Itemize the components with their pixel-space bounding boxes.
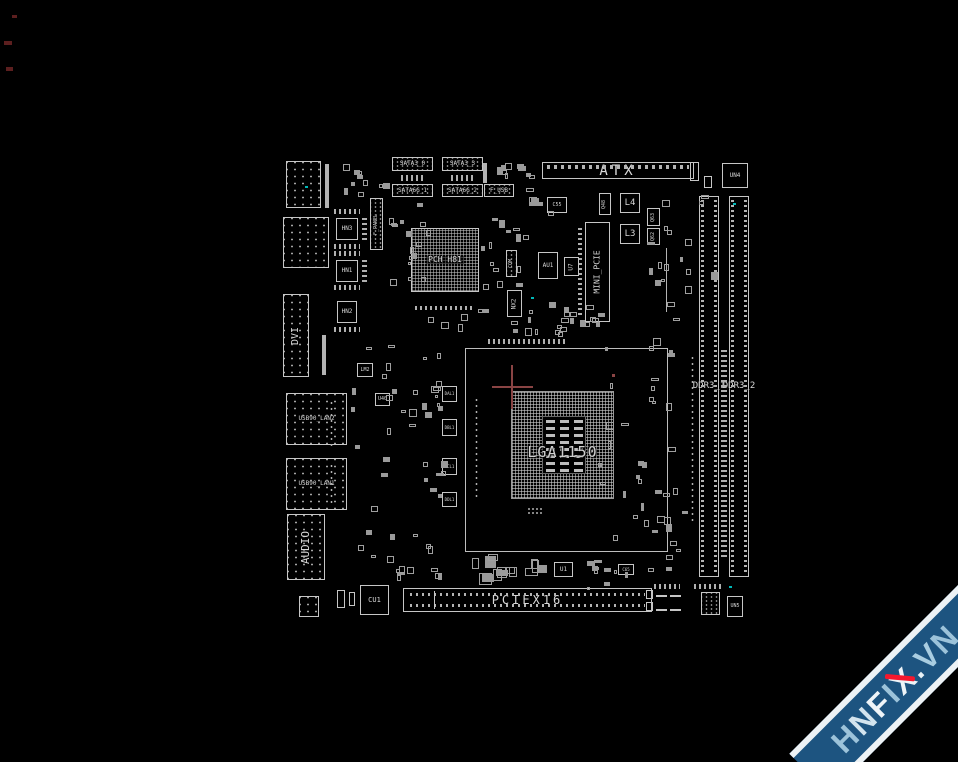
small-component <box>413 390 418 395</box>
small-component <box>594 560 602 563</box>
audio-port-label: AUDIO <box>301 530 312 563</box>
small-component <box>482 574 494 582</box>
motherboard-diagram: DVIUSB90_LAN2USB90_LAN1AUDIOHN3HN1HN2F_P… <box>0 0 958 762</box>
cap-c65-label: C65 <box>622 568 629 572</box>
small-component <box>422 403 427 410</box>
small-component <box>386 363 391 371</box>
small-component <box>435 395 438 398</box>
small-component <box>528 317 531 323</box>
pin-column <box>701 200 704 573</box>
small-component <box>525 328 532 336</box>
io-port-upper <box>283 217 329 268</box>
small-component <box>585 322 590 327</box>
small-component <box>407 567 414 574</box>
pin-column <box>714 200 717 573</box>
small-component <box>598 313 605 317</box>
small-component <box>686 269 691 275</box>
small-component <box>363 180 368 186</box>
small-component <box>526 188 534 192</box>
chip-un4-label: UN4 <box>730 173 741 179</box>
small-component <box>390 279 397 286</box>
small-component <box>621 423 629 426</box>
small-component <box>598 463 602 467</box>
slot-key-notch <box>434 591 435 609</box>
pin-row <box>334 209 360 214</box>
chip-hn3-label: HN3 <box>342 226 353 232</box>
pin-row <box>694 584 724 589</box>
small-component <box>513 329 518 333</box>
small-component <box>420 222 426 227</box>
small-component <box>668 447 676 452</box>
small-component <box>430 488 437 492</box>
small-component <box>390 534 395 540</box>
socket-capacitor <box>574 420 583 423</box>
dvi-port-label: DVI <box>291 326 301 344</box>
pch-bga-label: PCH H81 <box>426 256 464 264</box>
small-component <box>623 491 626 498</box>
pin-col <box>690 355 695 525</box>
pin-column <box>744 200 747 573</box>
marker-dot <box>612 374 615 377</box>
sata3-3-connector: SATA3_3 <box>442 157 483 171</box>
small-component <box>680 257 683 262</box>
small-component <box>357 175 363 179</box>
small-component <box>366 347 372 350</box>
small-component <box>653 338 661 346</box>
pin-row <box>334 327 360 332</box>
small-component <box>606 422 614 430</box>
sata3-0-connector-label: SATA3_0 <box>400 161 425 167</box>
mosfet-q48-label: Q48 <box>603 199 608 208</box>
sata6g-2-connector: SATA6G_2 <box>442 184 483 197</box>
small-component <box>408 277 412 281</box>
small-box <box>690 162 699 181</box>
small-component <box>381 473 388 477</box>
small-component <box>658 262 662 269</box>
socket-capacitor <box>574 469 583 472</box>
mosfet-q48: Q48 <box>599 193 611 215</box>
pin-row <box>401 175 423 181</box>
small-component <box>496 570 508 576</box>
chip-un4: UN4 <box>722 163 748 188</box>
small-component <box>655 490 662 494</box>
small-component <box>516 283 523 287</box>
inductor-l4: L4 <box>620 193 640 213</box>
small-component <box>517 266 521 273</box>
socket-capacitor <box>560 420 569 423</box>
small-component <box>535 329 538 335</box>
driver-dal1-label: DAL1 <box>445 392 455 396</box>
chip-hn1-label: HN1 <box>342 268 353 274</box>
small-component <box>421 277 426 282</box>
small-component <box>604 568 611 572</box>
small-component <box>649 346 654 351</box>
small-component <box>351 407 355 412</box>
small-component <box>387 556 394 563</box>
small-component <box>666 555 673 560</box>
pin-row <box>654 584 680 589</box>
small-component <box>667 302 675 307</box>
sata3-0-connector: SATA3_0 <box>392 157 433 171</box>
ddr3-2-slot-label: DDR3_2 <box>723 382 756 391</box>
small-component <box>461 314 468 321</box>
teal-indicator-dot <box>305 186 308 188</box>
watermark-red-slash <box>884 674 914 682</box>
socket-capacitor <box>546 462 555 465</box>
small-component <box>625 572 628 578</box>
component-bar <box>325 164 329 208</box>
small-component <box>673 318 680 321</box>
small-component <box>441 322 449 329</box>
small-component <box>406 231 412 237</box>
small-component <box>614 570 617 574</box>
small-component <box>413 534 418 537</box>
small-component <box>458 324 463 332</box>
driver-dbl1: DBL1 <box>442 419 457 436</box>
dvi-port: DVI <box>283 294 309 377</box>
teal-indicator-dot <box>531 297 534 299</box>
power-pin <box>656 609 667 611</box>
com-header: COM <box>506 250 517 277</box>
io-grid-connector <box>286 161 321 208</box>
small-component <box>641 503 644 511</box>
small-component <box>682 511 688 514</box>
small-component <box>636 475 640 479</box>
small-component <box>701 195 709 199</box>
small-component <box>388 345 395 348</box>
socket-capacitor <box>560 462 569 465</box>
small-component <box>657 516 665 523</box>
socket-capacitor <box>546 427 555 430</box>
small-component <box>532 560 539 573</box>
small-box <box>349 592 355 606</box>
small-component <box>488 554 498 561</box>
small-component <box>633 515 638 519</box>
small-component <box>509 567 517 577</box>
edge-artifact-mark <box>4 41 12 45</box>
small-component <box>423 462 428 467</box>
small-component <box>529 310 533 314</box>
small-component <box>669 350 673 357</box>
small-component <box>431 568 438 572</box>
small-component <box>483 284 489 290</box>
small-component <box>664 517 671 525</box>
chip-hn1: HN1 <box>336 260 358 282</box>
crosshair-vertical <box>511 365 513 409</box>
small-component <box>401 410 406 413</box>
small-component <box>604 582 610 586</box>
small-component <box>670 541 677 546</box>
small-component <box>437 353 441 359</box>
pin-row <box>488 339 565 344</box>
small-component <box>596 322 600 327</box>
pin-row <box>415 306 475 310</box>
small-component <box>661 279 665 282</box>
small-box <box>646 602 653 611</box>
small-component <box>539 565 547 573</box>
small-component <box>371 506 378 512</box>
teal-indicator-dot <box>733 203 736 205</box>
small-component <box>523 235 529 240</box>
socket-capacitor <box>574 434 583 437</box>
small-component <box>351 182 355 186</box>
chip-hn3: HN3 <box>336 218 358 240</box>
driver-dal1: DAL1 <box>442 386 457 402</box>
small-component <box>649 268 653 275</box>
socket-capacitor <box>546 469 555 472</box>
mosfet-q63: Q63 <box>647 208 660 226</box>
chip-u7: U7 <box>564 257 579 276</box>
small-component <box>570 312 577 317</box>
small-component <box>482 309 489 313</box>
com-header-label: COM <box>509 259 514 268</box>
small-component <box>352 388 356 395</box>
small-component <box>389 218 394 225</box>
chip-au1: AU1 <box>538 252 558 279</box>
small-component <box>647 242 655 245</box>
small-component <box>481 246 485 251</box>
small-component <box>580 320 585 327</box>
small-component <box>638 479 642 484</box>
chip-hn2-label: HN2 <box>342 309 353 315</box>
pciex16-slot: PCIEX16 <box>403 588 652 612</box>
small-component <box>651 386 655 391</box>
small-component <box>383 183 390 189</box>
small-component <box>371 555 376 558</box>
small-component <box>644 520 649 527</box>
small-component <box>648 568 654 572</box>
small-component <box>383 457 390 462</box>
mosfet-q62-label: Q62 <box>651 232 656 241</box>
ddr3-1-slot: DDR3_1 <box>699 196 719 577</box>
sata3-3-connector-label: SATA3_3 <box>450 161 475 167</box>
small-component <box>426 230 431 236</box>
chip-un5-label: UN5 <box>730 604 739 609</box>
small-component <box>663 493 670 497</box>
small-box <box>337 590 345 608</box>
small-component <box>416 242 422 247</box>
small-component <box>557 325 562 329</box>
small-component <box>409 424 416 427</box>
small-component <box>513 228 520 231</box>
small-component <box>570 318 574 324</box>
small-component <box>561 318 569 323</box>
pin-row <box>334 244 360 249</box>
atx12v-connector <box>656 590 681 616</box>
small-component <box>666 524 672 532</box>
socket-capacitor <box>546 434 555 437</box>
chip-lm2: LM2 <box>357 363 373 377</box>
small-component <box>529 175 535 179</box>
driver-ddl1-label: DDL1 <box>445 498 455 502</box>
teal-indicator-dot <box>729 586 732 588</box>
small-component <box>493 268 499 272</box>
inductor-l3-label: L3 <box>625 230 636 239</box>
socket-capacitor <box>574 462 583 465</box>
chip-lm2-label: LM2 <box>360 368 369 373</box>
small-component <box>608 441 611 449</box>
small-component <box>699 201 704 205</box>
small-component <box>417 203 423 207</box>
small-component <box>592 566 598 571</box>
pin-col <box>329 400 334 447</box>
small-component <box>392 389 397 394</box>
mini-pcie-slot-label: MINI_PCIE <box>594 250 602 293</box>
ddr3-2-slot: DDR3_2 <box>729 196 749 577</box>
small-component <box>548 211 554 216</box>
usb-lan2-port: USB90_LAN2 <box>286 393 347 445</box>
small-component <box>358 192 364 197</box>
small-component <box>344 188 348 195</box>
chip-un5: UN5 <box>727 596 743 617</box>
small-component <box>505 163 512 170</box>
pin-col <box>721 350 727 560</box>
small-component <box>424 478 428 482</box>
small-component <box>587 587 590 590</box>
small-component <box>651 378 659 381</box>
small-component <box>505 173 508 179</box>
boardview-screenshot: DVIUSB90_LAN2USB90_LAN1AUDIOHN3HN1HN2F_P… <box>0 0 958 762</box>
cap-c55-label: C55 <box>552 203 561 208</box>
sata6g-1-connector-label: SATA6G_1 <box>398 188 427 194</box>
chip-nx2-label: NX2 <box>512 298 518 309</box>
small-component <box>358 545 364 551</box>
small-component <box>397 575 401 581</box>
small-component <box>531 198 539 206</box>
small-component <box>428 317 434 323</box>
small-component <box>655 280 661 286</box>
crystal <box>299 596 319 617</box>
socket-capacitor <box>560 434 569 437</box>
socket-capacitor <box>560 469 569 472</box>
small-component <box>549 302 556 308</box>
usb-lan1-port: USB90_LAN1 <box>286 458 347 510</box>
small-component <box>600 482 606 485</box>
chip-u1: U1 <box>554 562 573 577</box>
header-box <box>701 592 720 615</box>
chip-cu1-label: CU1 <box>368 597 381 604</box>
small-component <box>428 546 433 554</box>
small-component <box>423 357 427 360</box>
small-component <box>412 253 417 259</box>
small-component <box>441 471 446 476</box>
component-bar <box>322 335 326 375</box>
small-component <box>685 239 692 246</box>
small-component <box>492 218 498 221</box>
small-component <box>408 262 411 265</box>
small-component <box>676 549 681 552</box>
small-component <box>586 305 594 310</box>
small-component <box>673 488 678 495</box>
small-component <box>511 321 518 325</box>
small-box <box>704 176 712 188</box>
atx-power-connector: ATX <box>542 162 694 179</box>
chip-hn2: HN2 <box>337 301 357 323</box>
small-component <box>667 230 672 235</box>
small-component <box>564 312 570 317</box>
inductor-l4-label: L4 <box>625 199 636 208</box>
pin-column <box>731 200 734 573</box>
pin-row <box>334 251 360 256</box>
chip-u1-label: U1 <box>560 567 567 573</box>
socket-label: LGA1150 <box>511 443 614 461</box>
small-component <box>366 530 372 535</box>
slot-pin-row <box>410 593 645 596</box>
small-component <box>506 230 511 233</box>
small-component <box>438 406 443 411</box>
small-component <box>652 401 656 404</box>
slot-pin-row <box>410 604 645 607</box>
mosfet-q63-label: Q63 <box>651 212 656 221</box>
small-component <box>664 264 669 271</box>
f-usb-header-label: F_USB <box>490 188 508 194</box>
small-component <box>685 286 692 294</box>
small-component <box>400 220 404 224</box>
f-usb-header: F_USB <box>484 184 514 197</box>
pin-col <box>329 463 334 503</box>
small-component <box>666 567 672 571</box>
small-component <box>490 262 494 266</box>
small-component <box>354 170 360 175</box>
pin-row <box>334 285 360 290</box>
sata6g-1-connector: SATA6G_1 <box>392 184 433 197</box>
small-component <box>666 403 672 411</box>
small-component <box>499 220 505 228</box>
small-component <box>382 374 387 379</box>
small-component <box>497 167 503 175</box>
small-component <box>472 558 479 569</box>
small-component <box>409 409 417 417</box>
small-component <box>516 234 521 242</box>
power-pin <box>656 595 667 597</box>
small-box <box>646 590 653 599</box>
small-component <box>662 200 670 207</box>
socket-capacitor <box>560 427 569 430</box>
small-component <box>517 164 524 169</box>
small-component <box>387 428 391 435</box>
small-component <box>441 461 448 468</box>
chip-nx2: NX2 <box>507 290 522 317</box>
small-component <box>431 386 439 393</box>
chip-u7-label: U7 <box>568 263 574 270</box>
driver-dbl1-label: DBL1 <box>445 426 455 430</box>
inductor-l3: L3 <box>620 224 640 244</box>
component-bar <box>483 163 487 183</box>
small-component <box>613 535 618 541</box>
power-pin <box>670 609 681 611</box>
small-component <box>652 530 658 533</box>
front-panel-header-label: F_PANEL <box>374 213 379 234</box>
small-component <box>642 462 647 468</box>
small-component <box>399 566 405 573</box>
small-component <box>489 242 492 249</box>
small-component <box>438 494 442 498</box>
audio-port: AUDIO <box>287 514 325 580</box>
chip-cu1: CU1 <box>360 585 389 615</box>
front-panel-header: F_PANEL <box>370 198 383 250</box>
pin-row <box>451 175 473 181</box>
edge-artifact-mark <box>12 15 17 18</box>
small-component <box>386 395 393 401</box>
small-component <box>711 272 718 280</box>
small-component <box>436 381 442 387</box>
power-pin <box>670 595 681 597</box>
small-component <box>438 574 442 580</box>
driver-ddl1: DDL1 <box>442 492 457 507</box>
sata6g-2-connector-label: SATA6G_2 <box>448 188 477 194</box>
connector-pin-row <box>547 165 689 169</box>
small-component <box>425 412 432 418</box>
